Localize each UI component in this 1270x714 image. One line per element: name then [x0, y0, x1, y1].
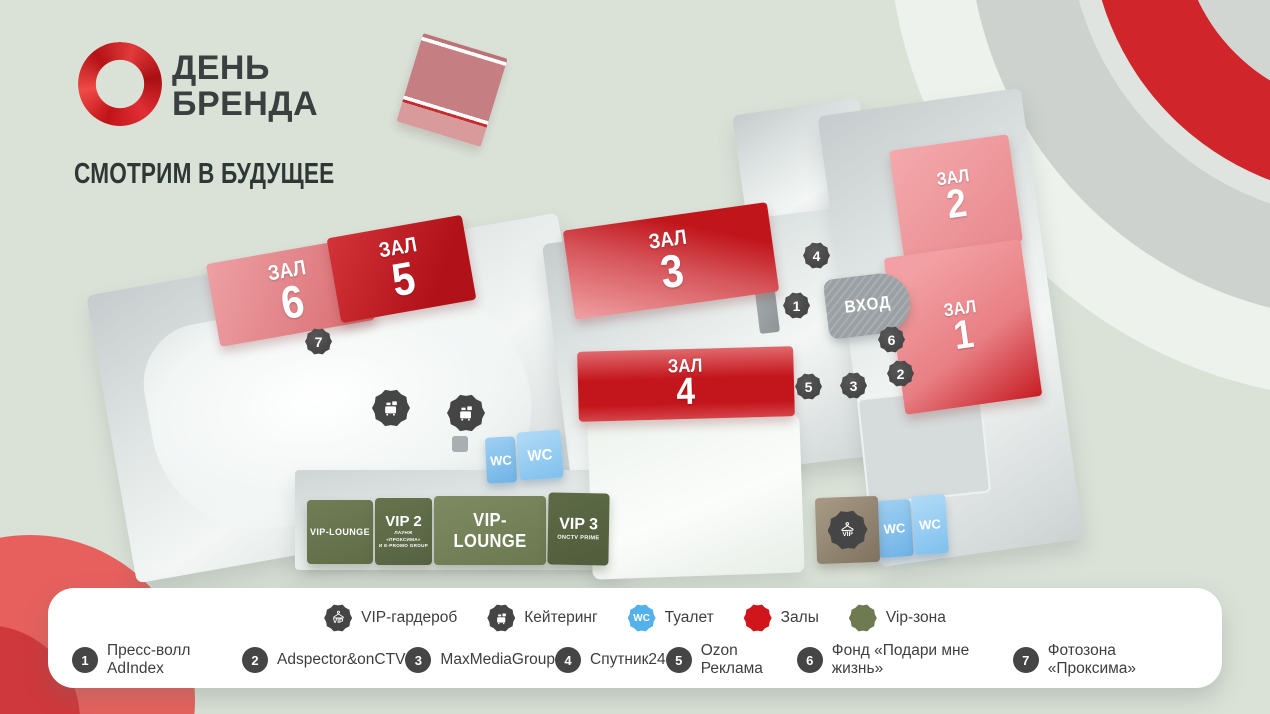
hall-1-number: 1 [945, 315, 982, 356]
legend-numbered-item-2: 2 Adspector&onCTV [242, 647, 405, 673]
legend-label: Спутник24 [590, 651, 666, 669]
legend-label: VIP-гардероб [361, 609, 457, 627]
vip-icon-text: VIP [333, 619, 343, 626]
entrance-label: ВХОД [844, 292, 893, 318]
wc-label: WC [919, 516, 942, 532]
hall-2: ЗАЛ2 [889, 134, 1023, 258]
vip-lounge-small-label: VIP-LOUNGE [310, 527, 370, 537]
wc-label: WC [883, 520, 906, 536]
vip-3-subline: ONCTV PRIME [557, 533, 599, 542]
legend-numbered-item-1: 1 Пресс-волл AdIndex [72, 642, 242, 678]
legend-item-halls: Залы [744, 604, 819, 632]
legend-number-badge: 7 [1013, 647, 1039, 673]
legend-label: Фонд «Подари мне жизнь» [832, 642, 1013, 678]
hall-1: ЗАЛ1 [884, 239, 1043, 415]
legend-number-badge: 2 [242, 647, 268, 673]
vip-2-title: VIP 2 [385, 513, 421, 530]
legend-label: Пресс-волл AdIndex [107, 642, 242, 678]
legend-label: Туалет [665, 609, 714, 627]
legend-numbered-item-4: 4 Спутник24 [555, 647, 666, 673]
brand-logo-ring-icon [78, 42, 162, 126]
legend-item-wc: WC Туалет [628, 604, 714, 632]
small-structure [452, 436, 468, 452]
legend-numbered-item-6: 6 Фонд «Подари мне жизнь» [797, 642, 1013, 678]
vip-wardrobe-area: VIP [815, 496, 880, 564]
legend-label: Кейтеринг [524, 609, 597, 627]
legend-number-badge: 1 [72, 647, 98, 673]
legend-label: Vip-зона [886, 609, 946, 627]
legend-item-vip-wardrobe: VIP VIP-гардероб [324, 604, 457, 632]
hall-5-number: 5 [381, 254, 426, 302]
wc-block-3: WC [875, 499, 914, 558]
brand-name-line1: ДЕНЬ [172, 49, 270, 87]
hall-4-number: 4 [669, 375, 704, 411]
legend-numbered-item-3: 3 MaxMediaGroup [405, 647, 555, 673]
wc-label: WC [490, 452, 512, 468]
vip-wardrobe-icon: VIP [324, 604, 352, 632]
brand-name: ДЕНЬ БРЕНДА [172, 50, 318, 122]
hall-6-number: 6 [270, 277, 315, 325]
hall-4: ЗАЛ4 [577, 346, 795, 422]
decor-tilted-tile [396, 33, 507, 147]
vip-3-title: VIP 3 [559, 515, 598, 534]
hall-3-number: 3 [651, 247, 695, 294]
legend-number-badge: 6 [797, 647, 823, 673]
wc-block-2: WC [516, 430, 563, 481]
building-middle-open-area [587, 414, 804, 579]
wc-icon: WC [628, 604, 656, 632]
vip-2-subline-1: ЛАУНЖ [394, 530, 412, 537]
vip-2-subline-3: И E-PROMO GROUP [379, 543, 428, 550]
legend-number-badge: 3 [405, 647, 431, 673]
hall-2-number: 2 [938, 184, 975, 225]
wc-block-4: WC [911, 494, 949, 555]
legend-categories-row: VIP VIP-гардероб Кейтеринг WC Туалет Зал… [48, 598, 1222, 638]
vip-3-block: VIP 3 ONCTV PRIME [547, 492, 609, 565]
vip-lounge-big-label: VIP-LOUNGE [438, 510, 541, 552]
vip-wardrobe-icon: VIP [827, 509, 868, 550]
wc-label: WC [527, 446, 553, 465]
legend-numbered-item-7: 7 Фотозона «Проксима» [1013, 642, 1198, 678]
floor-plan-poster: ДЕНЬ БРЕНДА СМОТРИМ В БУДУЩЕЕ ЗАЛ6 ЗАЛ5 … [0, 0, 1270, 714]
legend-label: Фотозона «Проксима» [1048, 642, 1198, 678]
legend-card: VIP VIP-гардероб Кейтеринг WC Туалет Зал… [48, 588, 1222, 688]
legend-numbered-row: 1 Пресс-волл AdIndex 2 Adspector&onCTV 3… [72, 640, 1198, 680]
legend-item-catering: Кейтеринг [487, 604, 597, 632]
catering-icon [487, 604, 515, 632]
vip-lounge-big: VIP-LOUNGE [434, 496, 546, 565]
legend-numbered-item-5: 5 Ozon Реклама [666, 642, 797, 678]
wc-icon-text: WC [633, 613, 650, 624]
catering-glyph [494, 611, 509, 626]
vip-icon-text: VIP [842, 532, 853, 539]
vip-zone-color-icon [849, 604, 877, 632]
brand-name-line2: БРЕНДА [172, 85, 318, 123]
vip-2-subline-2: «ПРОКСИМА» [386, 537, 421, 544]
legend-item-vip-zone: Vip-зона [849, 604, 946, 632]
legend-label: Ozon Реклама [701, 642, 797, 678]
catering-glyph [381, 398, 401, 418]
halls-color-icon [744, 604, 772, 632]
wc-block-1: WC [485, 436, 517, 484]
legend-number-badge: 5 [666, 647, 692, 673]
legend-label: Залы [781, 609, 819, 627]
legend-label: MaxMediaGroup [440, 651, 555, 669]
vip-2-block: VIP 2 ЛАУНЖ «ПРОКСИМА» И E-PROMO GROUP [375, 498, 432, 565]
brand-tagline: СМОТРИМ В БУДУЩЕЕ [74, 158, 334, 191]
catering-glyph [456, 403, 476, 423]
legend-label: Adspector&onCTV [277, 651, 405, 669]
legend-number-badge: 4 [555, 647, 581, 673]
vip-lounge-small: VIP-LOUNGE [307, 500, 373, 564]
